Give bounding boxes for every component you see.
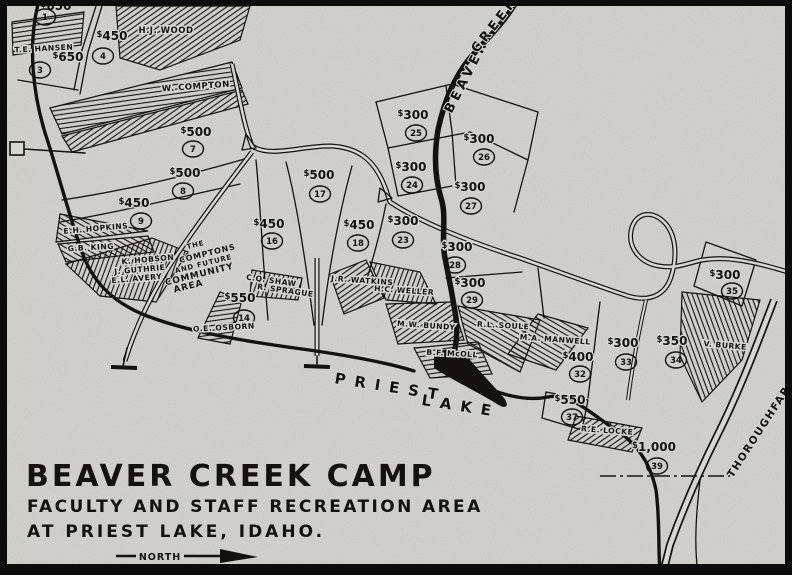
- owner-label-h-j-wood: H.J. WOOD: [138, 26, 193, 36]
- beaver-creek-camp-map: $6501$6503$4504$5007$5008$4509$55014$450…: [0, 0, 792, 575]
- lot-number: 26: [478, 153, 490, 163]
- lot-number: 35: [726, 287, 738, 297]
- lot-number: 24: [406, 181, 418, 191]
- lot-number: 4: [100, 52, 106, 62]
- lot-number: 17: [314, 190, 326, 200]
- map-title-line1: BEAVER CREEK CAMP: [26, 459, 436, 494]
- lot-number: 18: [352, 239, 364, 249]
- lot-number: 28: [449, 261, 461, 271]
- lot-number: 33: [620, 358, 632, 368]
- lot-number: 37: [566, 413, 578, 423]
- lot-number: 8: [180, 187, 186, 197]
- lot-number: 1: [42, 13, 48, 23]
- lot-number: 39: [651, 462, 663, 472]
- lot-number: 3: [37, 66, 43, 76]
- map-title-line3: AT PRIEST LAKE, IDAHO.: [27, 522, 325, 542]
- lot-price: $1,000: [632, 440, 676, 454]
- lot-number: 23: [397, 236, 409, 246]
- lot-number: 34: [670, 356, 682, 366]
- lot-number: 29: [466, 296, 478, 306]
- lot-number: 25: [410, 129, 422, 139]
- lot-number: 16: [266, 237, 278, 247]
- pier-center: [304, 366, 330, 367]
- pier-west: [10, 142, 24, 155]
- lot-number: 9: [138, 217, 144, 227]
- lot-number: 27: [465, 202, 477, 212]
- lot-number: 32: [574, 370, 586, 380]
- map-title-line2: FACULTY AND STAFF RECREATION AREA: [27, 497, 483, 517]
- lot-number: 7: [190, 145, 196, 155]
- north-label: NORTH: [139, 552, 181, 563]
- pier-southwest: [111, 367, 137, 368]
